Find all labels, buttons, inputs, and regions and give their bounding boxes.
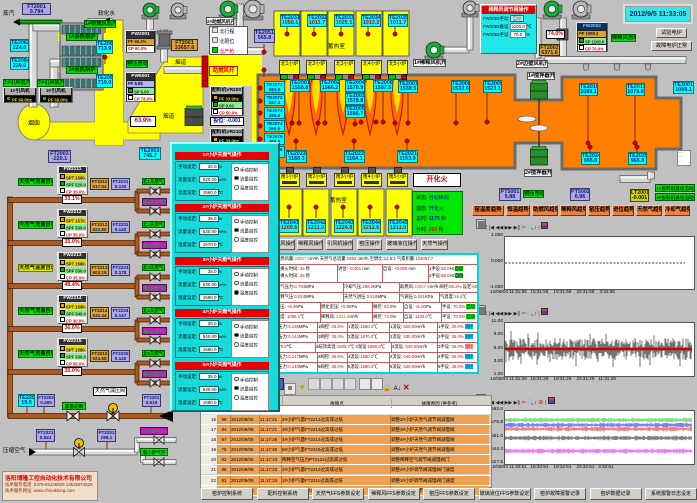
svg-text:烟囱: 烟囱 xyxy=(28,119,40,127)
